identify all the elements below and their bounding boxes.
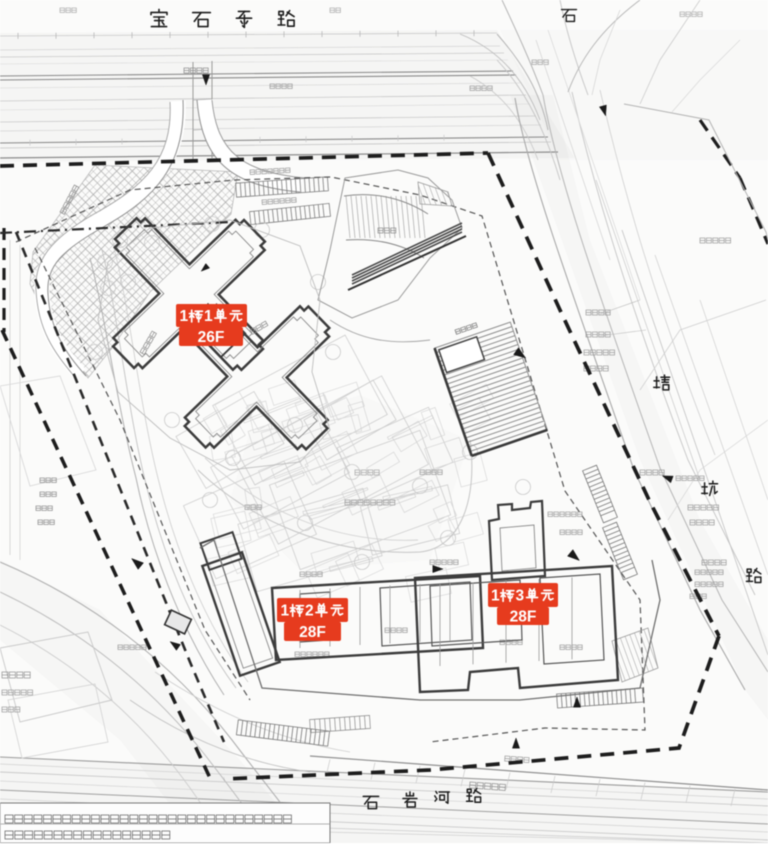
svg-text:1: 1 — [204, 308, 213, 325]
svg-text:28F: 28F — [510, 609, 537, 626]
svg-text:26F: 26F — [198, 329, 225, 346]
svg-text:2: 2 — [305, 603, 314, 620]
svg-text:1: 1 — [280, 603, 289, 620]
svg-text:3: 3 — [515, 588, 524, 605]
svg-text:28F: 28F — [299, 624, 326, 641]
svg-text:1: 1 — [179, 308, 188, 325]
svg-text:1: 1 — [491, 588, 500, 605]
